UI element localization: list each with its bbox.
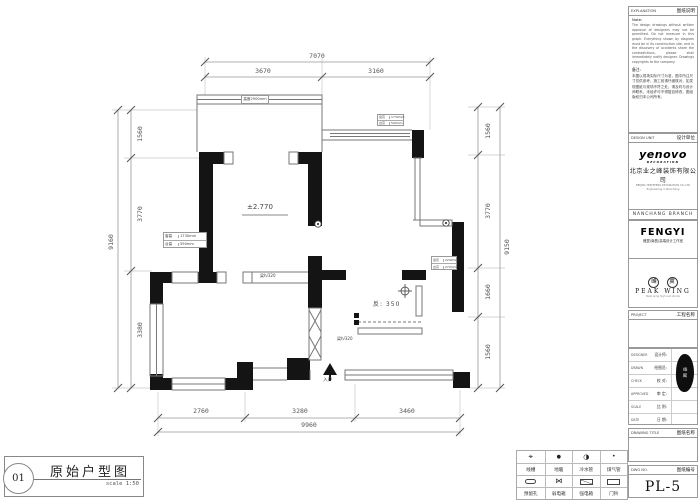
branch-name: NANCHANG BRANCH xyxy=(629,209,697,219)
yenovo-logo: yenovo xyxy=(629,149,697,160)
dim-right-seg: 1660 xyxy=(484,284,492,300)
dim-bottom-seg: 2760 xyxy=(193,407,209,415)
peak-wing-name: PEAK WING xyxy=(629,288,697,295)
drawing-title-en: DRAWING TITLE xyxy=(631,431,659,435)
note-body: The design drawings without written appr… xyxy=(629,22,697,66)
level-mark: ±2.770 xyxy=(246,203,274,211)
bowtie-icon: ⋈ xyxy=(555,478,562,485)
design-unit-cn: 设计单位 xyxy=(677,135,695,141)
drawing-caption: 01 原始户型图 scale 1:50 xyxy=(4,456,144,497)
dim-left-total: 9160 xyxy=(107,234,115,250)
company-address-2: Engineering in Nanchang xyxy=(629,188,697,192)
peak-seal-char: 峰 xyxy=(648,277,659,288)
sunken-label: 反: 350 xyxy=(372,299,401,308)
fengyi-box: FENGYI 峰翼(南昌)高端设计工作室 xyxy=(628,220,698,259)
legend-label: 线槽 xyxy=(517,463,545,475)
row-en: CHECK xyxy=(631,379,642,383)
remark-title: 备注: xyxy=(629,66,697,73)
small-dot-icon: • xyxy=(612,454,616,460)
peak-seal-char: 翼 xyxy=(667,277,678,288)
filled-dot-icon: ● xyxy=(557,455,561,460)
legend-label: 门铃 xyxy=(600,487,628,499)
dim-top-total: 7070 xyxy=(309,52,325,60)
beam-label: 梁h/320 xyxy=(259,273,277,279)
dim-bottom-total: 9960 xyxy=(301,421,317,429)
fengyi-logo: FENGYI xyxy=(629,228,697,238)
dim-left-seg: 3770 xyxy=(136,206,144,222)
dim-right-seg: 3770 xyxy=(484,203,492,219)
entry-label: 入户 xyxy=(322,377,333,383)
dim-top-seg: 3670 xyxy=(255,67,271,75)
design-unit-box: DESIGN UNIT 设计单位 yenovo DECORATION 北京业之峰… xyxy=(628,133,698,220)
row-cn: 比 例: xyxy=(657,404,667,410)
dim-right-seg: 1560 xyxy=(484,123,492,139)
beam-label: 梁h/320 xyxy=(336,336,354,342)
legend-label: 预留孔 xyxy=(517,487,545,499)
floorplan-sheet: 7070 3670 3160 1560 3770 3380 9160 1560 … xyxy=(0,0,700,502)
row-en: DRAWN xyxy=(631,366,643,370)
project-box: PROJECT 工程名称 xyxy=(628,310,698,348)
remark-body: 本图以现场实际尺寸为准，图中所注尺寸仅供参考，施工前请仔细核对，如发现图纸与现场… xyxy=(629,73,697,102)
row-cn: 校 对: xyxy=(657,378,667,384)
row-en: DATE xyxy=(631,418,639,422)
row-en: DESIGNER xyxy=(631,353,648,357)
drawing-number-badge: 01 xyxy=(3,463,34,494)
legend-label: 弱电箱 xyxy=(545,487,573,499)
dim-right-total: 9150 xyxy=(503,239,511,255)
floor-drain-icon xyxy=(398,284,412,298)
design-unit-en: DESIGN UNIT xyxy=(631,136,655,140)
dwg-no-cn: 图纸编号 xyxy=(677,467,695,473)
title-block: EXPLANATION 图纸说明 Note: The design drawin… xyxy=(628,6,698,498)
rect-diagonal-icon xyxy=(580,479,593,485)
half-circle-icon: ◑ xyxy=(583,454,589,461)
legend-label: 冷水管 xyxy=(572,463,600,475)
dwg-no-en: DWG NO. xyxy=(631,468,648,472)
dim-top-seg: 3160 xyxy=(368,67,384,75)
dim-right-seg: 1560 xyxy=(484,344,492,360)
drawing-title: 原始户型图 xyxy=(50,461,130,480)
fengyi-sub: 峰翼(南昌)高端设计工作室 xyxy=(629,238,697,243)
floor-plan-drawing xyxy=(0,0,700,502)
dim-left-seg: 3380 xyxy=(136,322,144,338)
window-note-a: 窗高1730mm 台高590mm xyxy=(163,232,207,248)
legend-label: 煤气管 xyxy=(600,463,628,475)
explanation-en: EXPLANATION xyxy=(631,9,656,13)
project-cn: 工程名称 xyxy=(677,312,695,318)
legend-label: 强电箱 xyxy=(572,487,600,499)
row-cn: 审 定: xyxy=(657,391,667,397)
explanation-cn: 图纸说明 xyxy=(677,8,695,14)
dim-left-seg: 1560 xyxy=(136,126,144,142)
dwg-no-box: DWG NO. 图纸编号 PL-5 xyxy=(628,465,698,498)
project-en: PROJECT xyxy=(631,313,647,317)
personnel-box: DESIGNER设计师: DRAWN绘图员: CHECK校 对: APPROVE… xyxy=(628,348,698,425)
drawing-scale: scale 1:50 xyxy=(106,481,139,487)
explanation-box: EXPLANATION 图纸说明 Note: The design drawin… xyxy=(628,6,698,133)
drawing-title-cn: 图纸名称 xyxy=(677,430,695,436)
row-cn: 绘图员: xyxy=(654,365,667,371)
row-en: SCALE xyxy=(631,405,641,409)
peakwing-box: 峰 翼 PEAK WING Peak wing high end studio xyxy=(628,258,698,308)
balcony-note: 高度2900mm xyxy=(241,95,269,104)
crosshair-icon: ⌖ xyxy=(528,453,533,461)
window-note-c: 窗高2290mm 台高270mm xyxy=(431,256,457,270)
row-en: APPROVED xyxy=(631,392,648,396)
drawing-title-box: DRAWING TITLE 图纸名称 xyxy=(628,428,698,462)
rect-icon xyxy=(607,479,620,485)
row-cn: 日 期: xyxy=(657,417,667,423)
dim-bottom-seg: 3460 xyxy=(399,407,415,415)
dim-bottom-seg: 3280 xyxy=(292,407,308,415)
legend-label: 地暖 xyxy=(545,463,573,475)
row-cn: 设计师: xyxy=(654,352,667,358)
company-name: 北京业之峰装饰有限公司 xyxy=(629,166,697,184)
window-note-b: 窗高1730mm 台高590mm xyxy=(377,114,404,126)
peak-wing-tagline: Peak wing high end studio xyxy=(629,295,697,298)
drawing-number: PL-5 xyxy=(629,475,697,495)
legend-grid: ⌖ ● ◑ • 线槽 地暖 冷水管 煤气管 ⋈ 预留孔 弱电箱 强电箱 门铃 xyxy=(516,450,628,500)
plug-icon xyxy=(525,479,536,484)
